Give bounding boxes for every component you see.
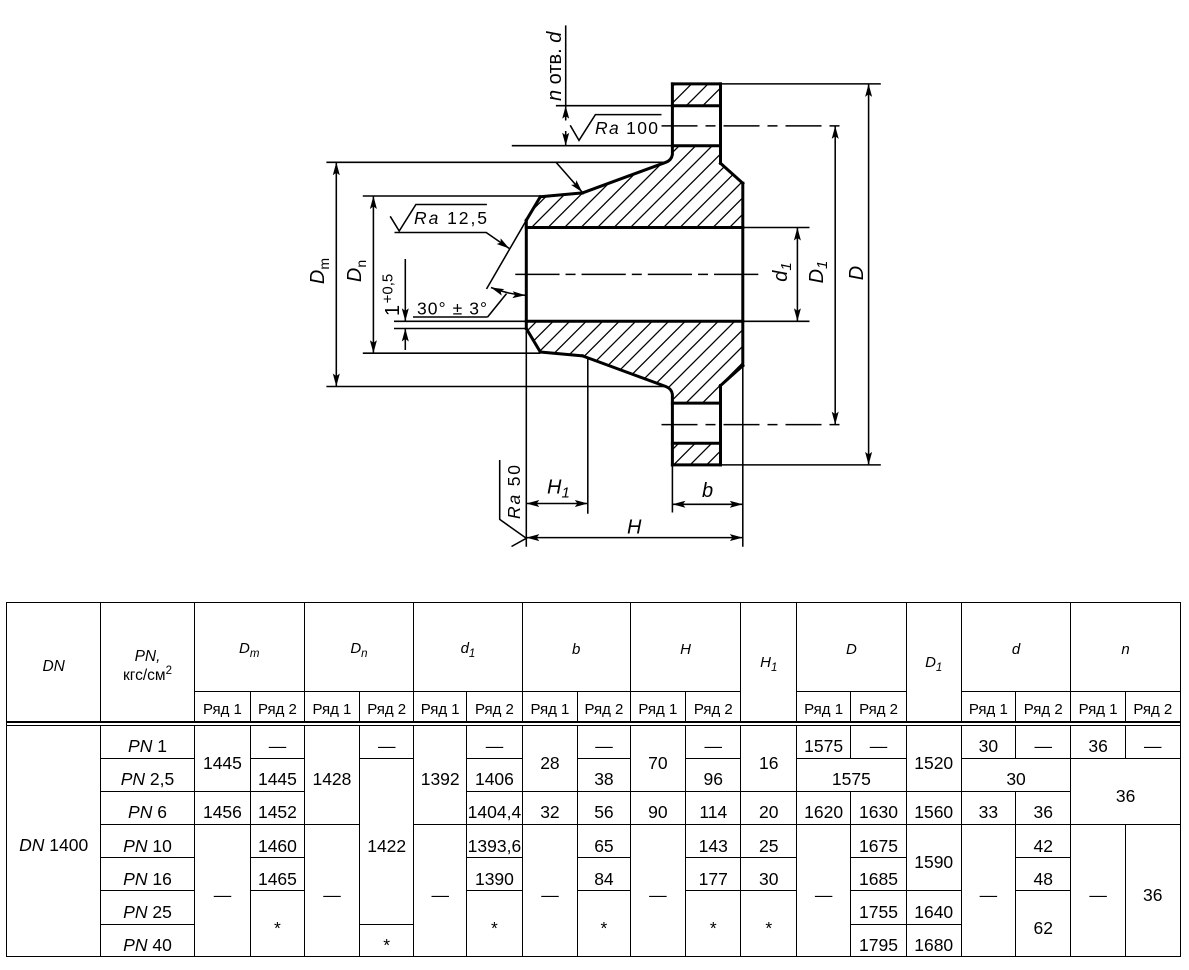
svg-text:n отв. d: n отв. d (544, 31, 566, 101)
svg-text:30° ± 3°: 30° ± 3° (417, 299, 487, 319)
svg-text:Ra 100: Ra 100 (595, 118, 658, 138)
svg-text:b: b (702, 480, 713, 502)
svg-text:Ra 12,5: Ra 12,5 (414, 208, 487, 228)
svg-text:H1: H1 (547, 477, 570, 502)
svg-text:Ra 50: Ra 50 (504, 465, 524, 519)
svg-text:Dm: Dm (307, 258, 332, 284)
svg-text:1+0,5: 1+0,5 (380, 274, 405, 316)
svg-text:d1: d1 (770, 262, 795, 281)
svg-text:H: H (627, 517, 642, 539)
svg-text:D1: D1 (806, 261, 831, 284)
svg-text:Dn: Dn (344, 260, 369, 282)
svg-text:D: D (846, 266, 868, 280)
